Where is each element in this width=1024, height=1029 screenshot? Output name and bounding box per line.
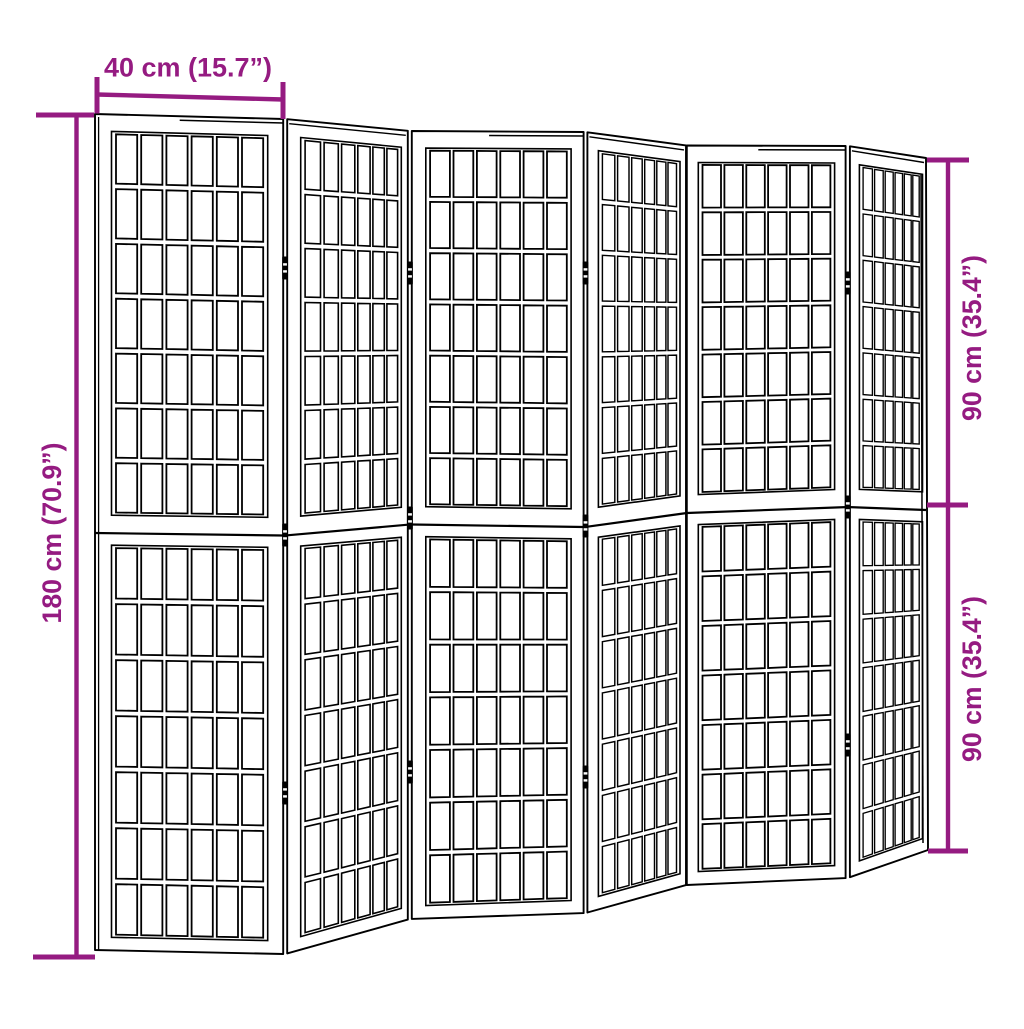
svg-text:90 cm (35.4”): 90 cm (35.4”) (957, 596, 987, 762)
svg-text:180 cm (70.9”): 180 cm (70.9”) (37, 443, 67, 624)
svg-text:40 cm (15.7”): 40 cm (15.7”) (104, 53, 272, 83)
svg-text:90 cm (35.4”): 90 cm (35.4”) (957, 255, 987, 421)
